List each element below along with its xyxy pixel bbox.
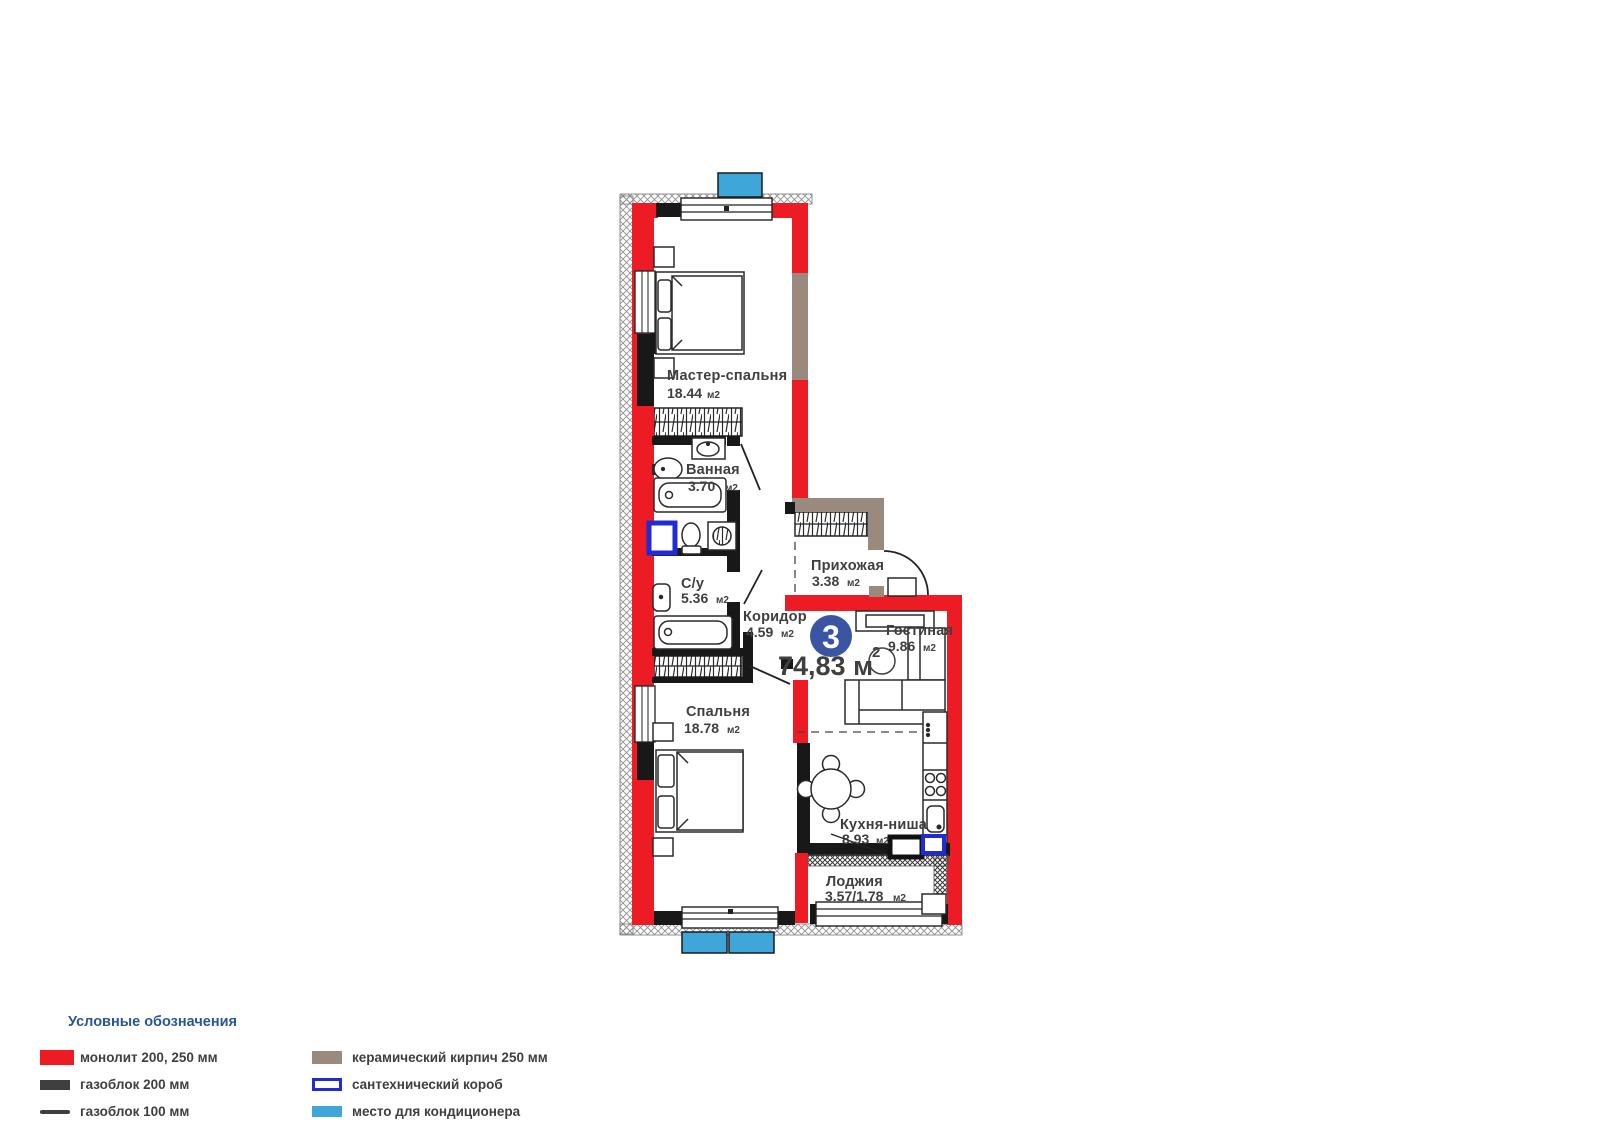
legend-title: Условные обозначения — [68, 1014, 548, 1030]
room-name-master: Мастер-спальня — [667, 368, 787, 384]
room-unit-wc: м2 — [716, 595, 729, 606]
washing-machine — [708, 522, 736, 550]
legend-label: газоблок 100 мм — [80, 1104, 189, 1119]
room-area-wc: 5.36 — [681, 590, 708, 606]
room-unit-hallway: м2 — [847, 578, 860, 589]
room-name-hallway: Прихожая — [811, 558, 884, 574]
window-bedroom-bottom — [682, 907, 778, 928]
room-area-kitchen: 8.93 — [842, 831, 869, 847]
legend-label: сантехнический короб — [352, 1077, 503, 1092]
monolith-swatch-icon — [40, 1050, 74, 1065]
wardrobe-hallway — [795, 512, 868, 536]
kitchen-sink — [927, 806, 944, 832]
nightstand — [654, 247, 674, 267]
room-unit-bedroom: м2 — [727, 725, 740, 736]
legend-item-monolith: монолит 200, 250 мм — [40, 1050, 312, 1065]
sink-wc — [653, 584, 670, 611]
door-bathroom — [741, 444, 760, 490]
unit-number: 3 — [822, 619, 840, 655]
legend-label: керамический кирпич 250 мм — [352, 1050, 548, 1065]
ac-unit-top-icon — [718, 173, 762, 197]
room-area-bedroom: 18.78 — [684, 720, 719, 736]
total-area-superscript: 2 — [872, 644, 880, 661]
sink-oval — [652, 458, 682, 480]
room-label-loggia: Лоджия 3.57/1.78 м2 — [825, 874, 906, 904]
room-unit-living: м2 — [923, 643, 936, 654]
room-unit-bathroom: м2 — [725, 483, 738, 494]
room-label-corridor: Коридор 4.59 м2 — [743, 609, 807, 640]
toilet — [682, 523, 701, 554]
ac-unit-bottom-right-icon — [729, 932, 774, 953]
loggia-box — [922, 894, 946, 914]
room-unit-corridor: м2 — [781, 629, 794, 640]
legend-label: монолит 200, 250 мм — [80, 1050, 218, 1065]
room-name-bedroom: Спальня — [686, 704, 750, 720]
room-label-wc: С/у 5.36 м2 — [681, 576, 729, 606]
vent-box — [888, 578, 916, 596]
room-label-bathroom: Ванная 3.70 м2 — [686, 462, 740, 494]
plumbing-box-swatch-icon — [312, 1078, 342, 1091]
window-bedroom-left — [635, 686, 655, 742]
ac-unit-bottom-left-icon — [682, 932, 727, 953]
room-unit-master: м2 — [707, 390, 720, 401]
nightstand — [653, 723, 673, 741]
washbasin-cabinet — [692, 438, 725, 459]
plumbing-box-bathroom-icon — [649, 523, 675, 553]
legend-grid: монолит 200, 250 мм газоблок 200 мм газо… — [40, 1044, 548, 1125]
room-name-living: Гостиная — [886, 623, 953, 639]
total-area-label: 74,83 м — [778, 651, 873, 681]
window-master-left — [635, 271, 655, 333]
room-area-master: 18.44 — [667, 385, 702, 401]
legend-label: место для кондиционера — [352, 1104, 520, 1119]
legend-item-gasblock-200: газоблок 200 мм — [40, 1077, 312, 1092]
gasblock-200-swatch-icon — [40, 1080, 70, 1090]
bathtub-wc — [654, 616, 732, 649]
wardrobe-master — [654, 408, 742, 436]
ceramic-brick-swatch-icon — [312, 1051, 342, 1064]
room-unit-kitchen: м2 — [876, 836, 889, 847]
window-master-top — [681, 198, 772, 220]
room-area-bathroom: 3.70 — [688, 478, 715, 494]
room-area-corridor: 4.59 — [746, 624, 773, 640]
gasblock-100-swatch-icon — [40, 1110, 70, 1114]
nightstand — [653, 838, 673, 856]
room-name-bathroom: Ванная — [686, 462, 740, 478]
floorplan-svg: Мастер-спальня 18.44 м2 Ванная 3.70 м2 С… — [0, 0, 1600, 1131]
room-label-bedroom: Спальня 18.78 м2 — [684, 704, 750, 736]
floorplan-page: Мастер-спальня 18.44 м2 Ванная 3.70 м2 С… — [0, 0, 1600, 1131]
room-area-loggia: 3.57/1.78 — [825, 888, 884, 904]
legend-item-ceramic-brick: керамический кирпич 250 мм — [312, 1050, 548, 1065]
room-area-living: 9.86 — [888, 638, 915, 654]
room-label-hallway: Прихожая 3.38 м2 — [811, 558, 884, 589]
room-name-corridor: Коридор — [743, 609, 807, 625]
legend-item-gasblock-100: газоблок 100 мм — [40, 1104, 312, 1119]
plumbing-box-kitchen-icon — [923, 836, 944, 853]
bed-bedroom — [656, 750, 743, 832]
room-label-master: Мастер-спальня 18.44 м2 — [667, 368, 787, 401]
legend-label: газоблок 200 мм — [80, 1077, 189, 1092]
legend-item-plumbing-box: сантехнический короб — [312, 1077, 548, 1092]
legend-item-ac-place: место для кондиционера — [312, 1104, 548, 1119]
bed-master — [656, 272, 744, 354]
room-area-hallway: 3.38 — [812, 573, 839, 589]
plumbing-box-kitchen-black — [890, 837, 922, 857]
wardrobe-bedroom — [654, 656, 742, 677]
ac-place-swatch-icon — [312, 1106, 342, 1117]
room-unit-loggia: м2 — [893, 893, 906, 904]
legend: Условные обозначения монолит 200, 250 мм… — [40, 1014, 548, 1125]
door-wc — [744, 570, 762, 604]
